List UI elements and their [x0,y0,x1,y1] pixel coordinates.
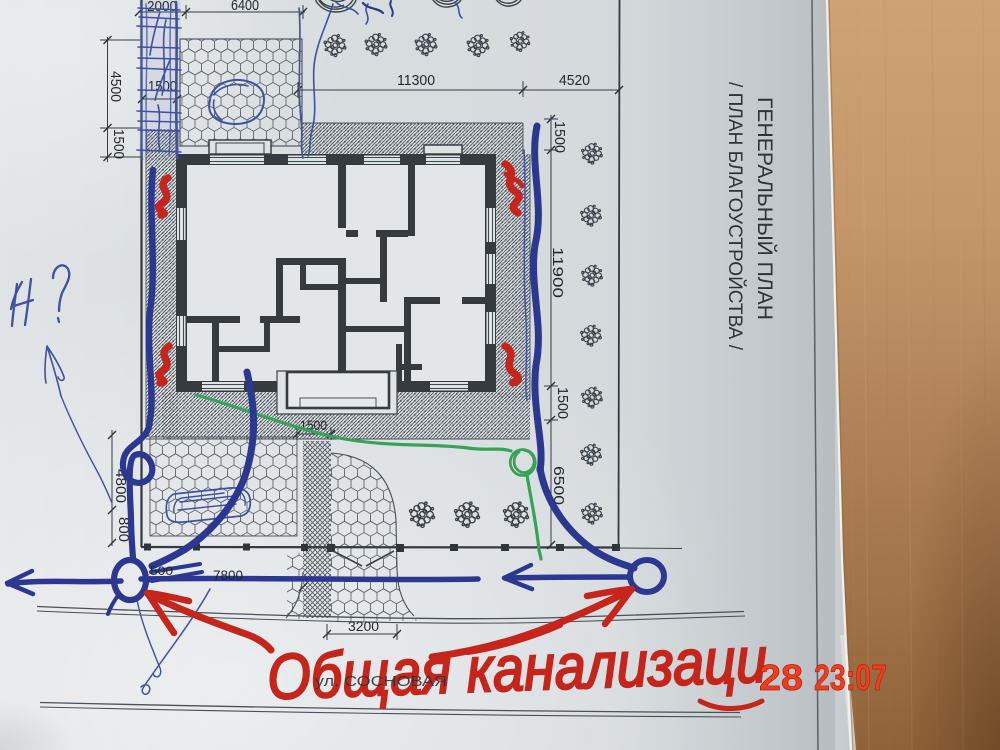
svg-text:11900: 11900 [549,247,566,298]
svg-text:1500: 1500 [551,121,568,153]
svg-text:11300: 11300 [397,73,435,89]
svg-text:/ ПЛАН БЛАГОУСТРОЙСТВА /: / ПЛАН БЛАГОУСТРОЙСТВА / [724,82,746,351]
svg-text:28: 28 [759,657,803,698]
svg-text:ул. СОСНОВАЯ: ул. СОСНОВАЯ [315,673,447,690]
svg-text:4520: 4520 [559,73,590,89]
svg-text:6400: 6400 [231,0,259,14]
svg-text:1500: 1500 [554,387,571,419]
svg-text:ГЕНЕРАЛЬНЫЙ ПЛАН: ГЕНЕРАЛЬНЫЙ ПЛАН [753,97,778,320]
svg-text:7800: 7800 [213,568,243,583]
svg-text:1500: 1500 [110,129,127,159]
svg-text:500: 500 [150,564,173,578]
svg-text:3200: 3200 [348,619,379,634]
svg-text:23:07: 23:07 [814,657,887,698]
svg-text:4500: 4500 [107,71,124,102]
